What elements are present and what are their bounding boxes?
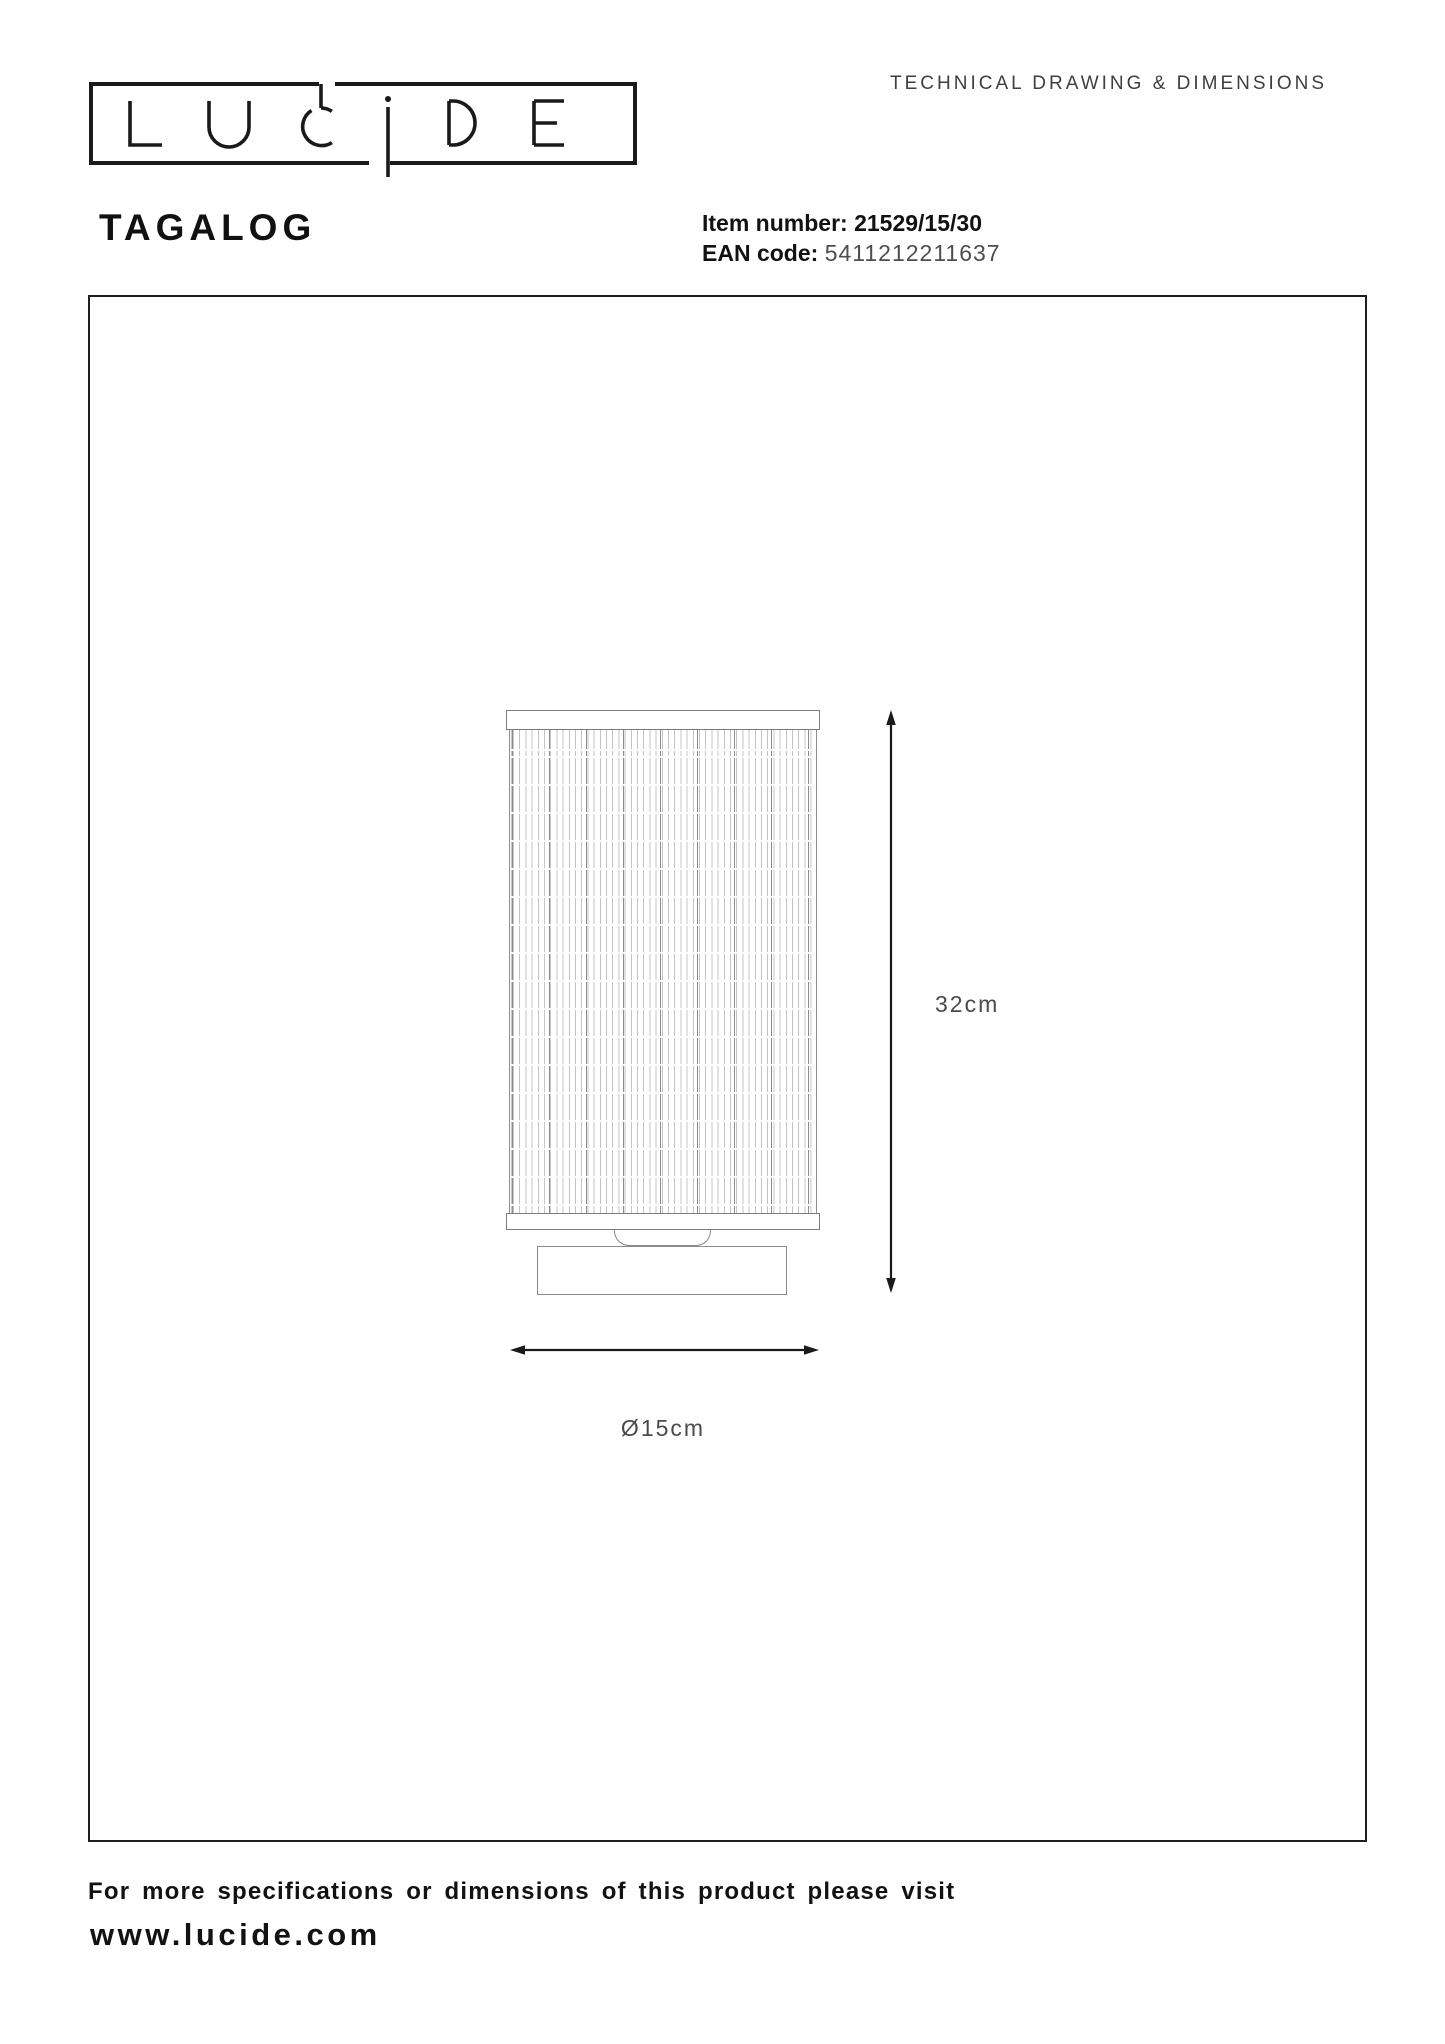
product-codes: Item number: 21529/15/30 EAN code: 54112… [702, 208, 1001, 268]
technical-drawing-panel: 32cm Ø15cm [88, 295, 1367, 1842]
height-dimension-label: 32cm [935, 991, 999, 1018]
diameter-arrow-right-icon [804, 1345, 819, 1355]
height-arrow-up-icon [886, 710, 896, 725]
logo-letter-e [534, 101, 564, 145]
diameter-arrow-left-icon [510, 1345, 525, 1355]
logo-letter-c [303, 111, 332, 146]
dimension-arrows [90, 297, 1365, 1840]
logo-letter-u [209, 101, 249, 147]
page-title: TECHNICAL DRAWING & DIMENSIONS [890, 73, 1327, 95]
logo-box-right [335, 84, 635, 163]
diameter-dimension-label: Ø15cm [621, 1415, 705, 1442]
lucide-logo [88, 80, 638, 182]
ean-label: EAN code: [702, 240, 818, 266]
item-number-row: Item number: 21529/15/30 [702, 208, 1001, 238]
height-arrow-down-icon [886, 1278, 896, 1293]
footer-website: www.lucide.com [90, 1917, 381, 1953]
spec-sheet-page: TECHNICAL DRAWING & DIMENSIONS TAGALOG I… [0, 0, 1445, 2044]
item-number-value: 21529/15/30 [854, 210, 982, 236]
ean-value: 5411212211637 [825, 240, 1001, 266]
footer-note: For more specifications or dimensions of… [88, 1878, 955, 1906]
item-number-label: Item number: [702, 210, 848, 236]
logo-letter-i-dot [385, 96, 391, 102]
logo-letter-c-top [321, 108, 332, 111]
product-name: TAGALOG [99, 207, 316, 249]
logo-box-left [91, 84, 369, 163]
ean-row: EAN code: 5411212211637 [702, 238, 1001, 268]
logo-letter-l [130, 101, 162, 145]
logo-letter-d-bowl [449, 101, 475, 145]
